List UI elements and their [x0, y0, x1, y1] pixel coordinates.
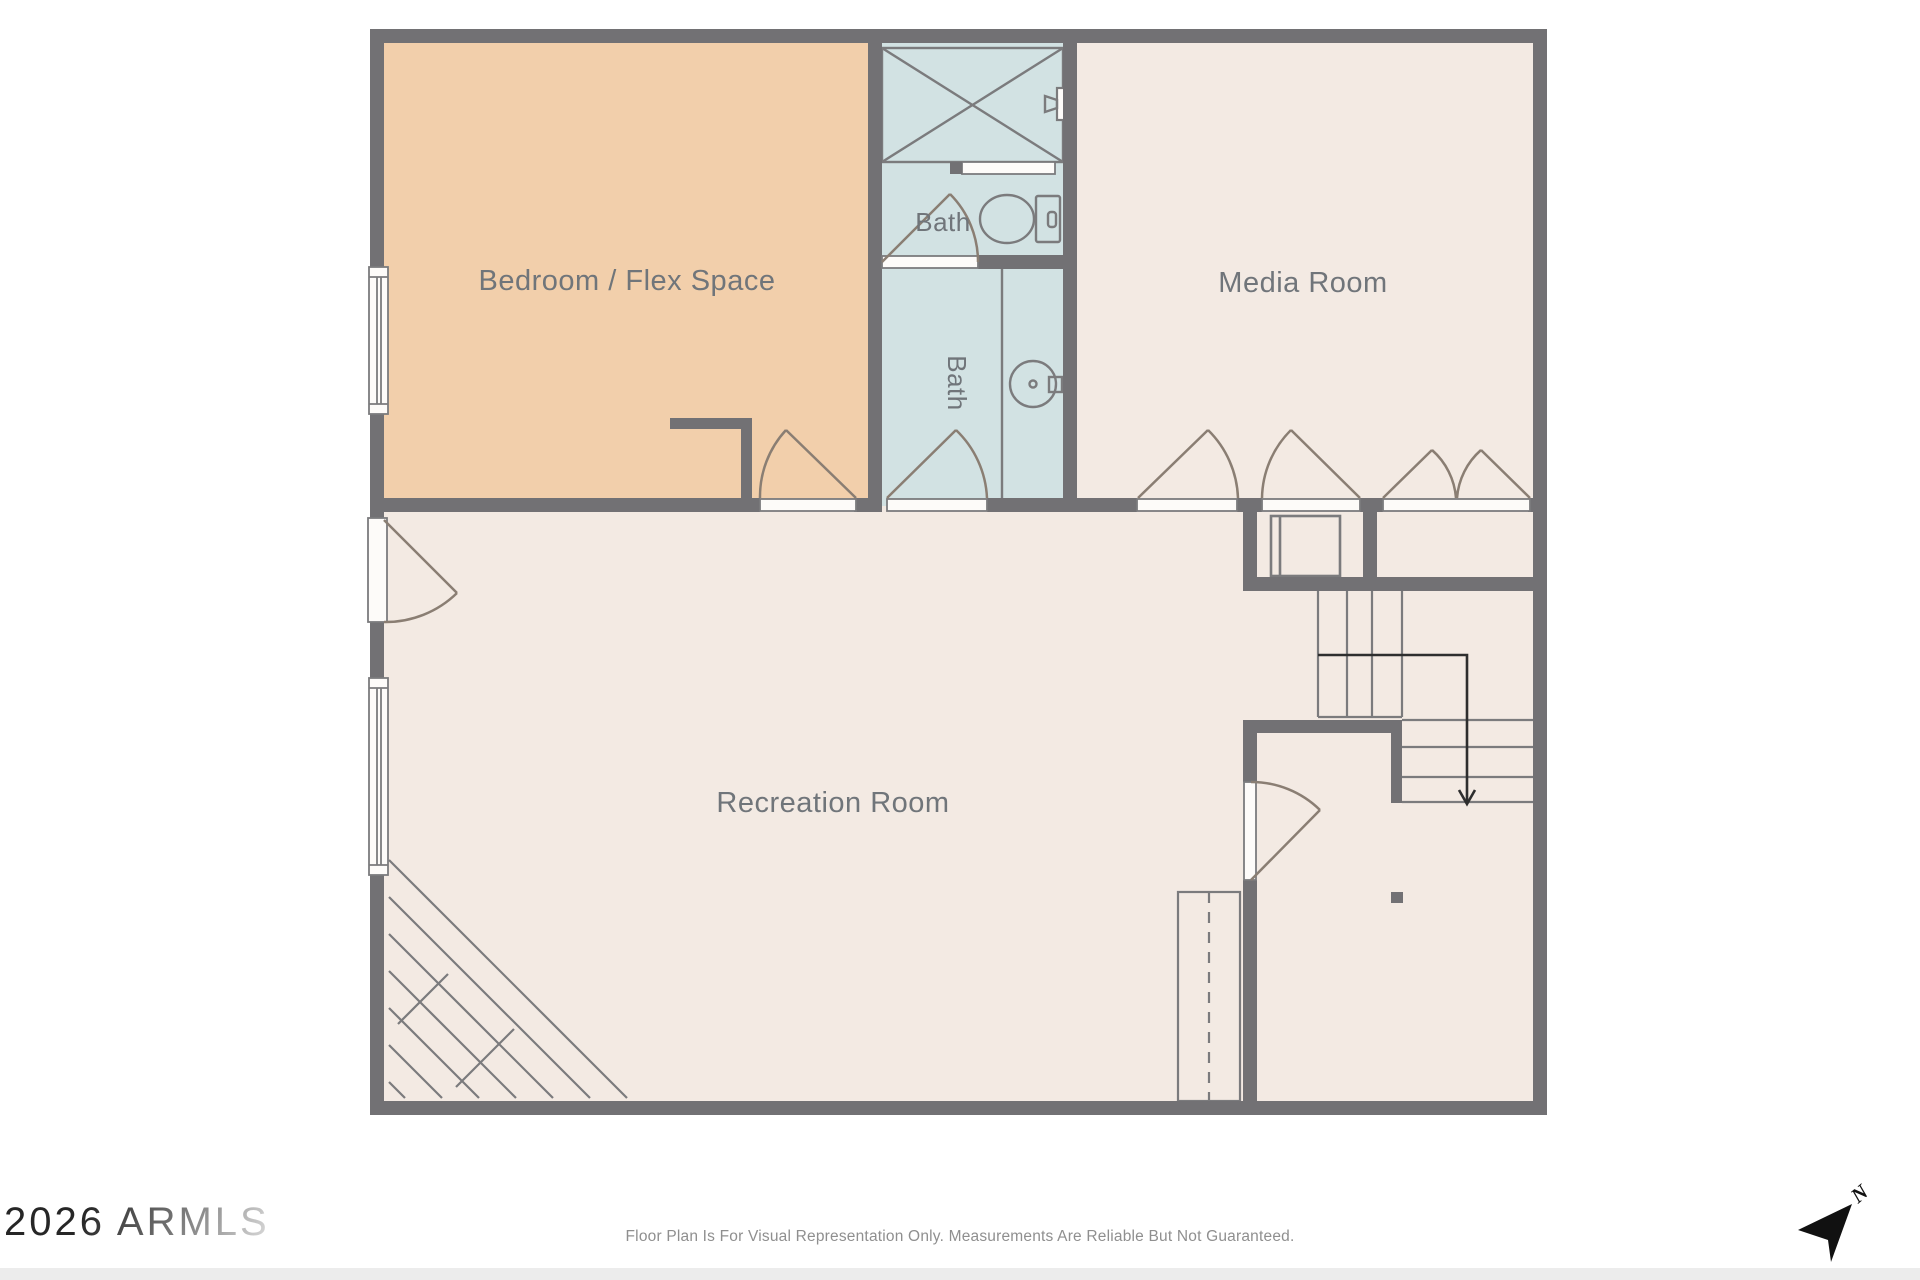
towel-bar-icon — [950, 162, 1055, 174]
room-label-bath-upper: Bath — [915, 207, 971, 237]
room-label-media: Media Room — [1218, 267, 1387, 299]
room-label-recreation: Recreation Room — [716, 787, 949, 819]
north-arrow-icon: N — [1798, 1179, 1874, 1262]
structural-post — [1391, 892, 1403, 903]
bedroom-window — [369, 267, 388, 414]
room-label-bath-lower: Bath — [942, 355, 972, 411]
floor-plan-drawing: Bedroom / Flex Space Bath Bath Media Roo… — [0, 0, 1920, 1280]
room-fill-recreation — [378, 506, 1540, 1108]
floor-plan-page: Bedroom / Flex Space Bath Bath Media Roo… — [0, 0, 1920, 1280]
room-label-bedroom-flex: Bedroom / Flex Space — [479, 265, 776, 297]
recreation-window — [369, 678, 388, 875]
disclaimer-text: Floor Plan Is For Visual Representation … — [0, 1228, 1920, 1246]
compass-north-label: N — [1845, 1179, 1873, 1208]
bottom-edge-band — [0, 1268, 1920, 1280]
